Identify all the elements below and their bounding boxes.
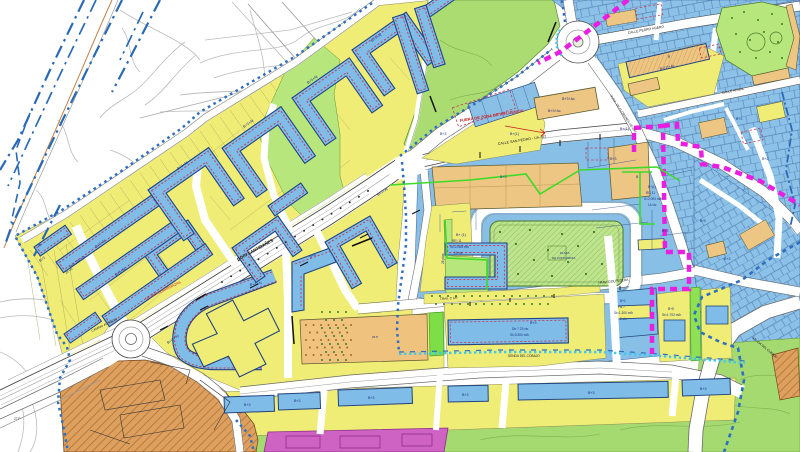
svg-text:14 viv.: 14 viv. — [648, 203, 657, 207]
svg-text:RE) 11: RE) 11 — [452, 239, 462, 243]
svg-text:B+5: B+5 — [700, 219, 706, 223]
svg-text:B+3: B+3 — [294, 399, 301, 403]
svg-text:B+3: B+3 — [700, 387, 707, 391]
svg-text:27 P: 27 P — [14, 417, 21, 421]
svg-text:B+3: B+3 — [724, 257, 731, 261]
svg-text:B+3: B+3 — [610, 157, 617, 161]
svg-text:St=5.300 m/h: St=5.300 m/h — [510, 333, 529, 337]
svg-text:B+(1): B+(1) — [510, 132, 519, 136]
svg-text:B+3: B+3 — [462, 393, 469, 397]
svg-text:B+1: B+1 — [620, 299, 626, 303]
svg-text:S=2.000 m/h: S=2.000 m/h — [644, 197, 662, 201]
svg-text:St=1.792 m/h: St=1.792 m/h — [662, 313, 681, 317]
svg-text:SENDA DEL COBAJO: SENDA DEL COBAJO — [508, 354, 540, 358]
svg-text:B+2: B+2 — [736, 117, 743, 121]
svg-text:DE CONCORDIA: DE CONCORDIA — [552, 256, 575, 260]
svg-text:Dtr 7 23 viv.: Dtr 7 23 viv. — [512, 327, 529, 331]
svg-text:B+3: B+3 — [368, 396, 375, 400]
svg-text:B+3: B+3 — [530, 321, 537, 325]
svg-text:PB 7: PB 7 — [618, 305, 625, 309]
svg-text:B+3+Ac: B+3+Ac — [548, 109, 561, 113]
svg-text:PLAZA: PLAZA — [560, 251, 570, 255]
svg-text:B+(1): B+(1) — [648, 185, 656, 189]
svg-text:26 P: 26 P — [372, 335, 378, 339]
svg-text:B+ (1): B+ (1) — [456, 233, 466, 237]
svg-text:B+2: B+2 — [662, 229, 669, 233]
svg-text:B+5: B+5 — [668, 307, 674, 311]
svg-text:B+3: B+3 — [440, 132, 447, 136]
svg-text:14 viv.: 14 viv. — [454, 251, 463, 255]
svg-text:B+3: B+3 — [588, 391, 595, 395]
svg-text:B+2: B+2 — [762, 157, 769, 161]
svg-text:St=1.300 m/h: St=1.300 m/h — [614, 311, 633, 315]
svg-text:RG 11: RG 11 — [646, 191, 655, 195]
svg-text:B+3+Ac: B+3+Ac — [562, 97, 575, 101]
svg-text:B+3: B+3 — [244, 403, 251, 407]
svg-text:9 viv.: 9 viv. — [620, 317, 627, 321]
svg-text:St=2.088 m/h: St=2.088 m/h — [450, 245, 469, 249]
svg-text:B+(1): B+(1) — [620, 127, 629, 131]
svg-text:B+3: B+3 — [500, 175, 507, 179]
svg-text:26 ptas: 26 ptas — [441, 253, 445, 264]
